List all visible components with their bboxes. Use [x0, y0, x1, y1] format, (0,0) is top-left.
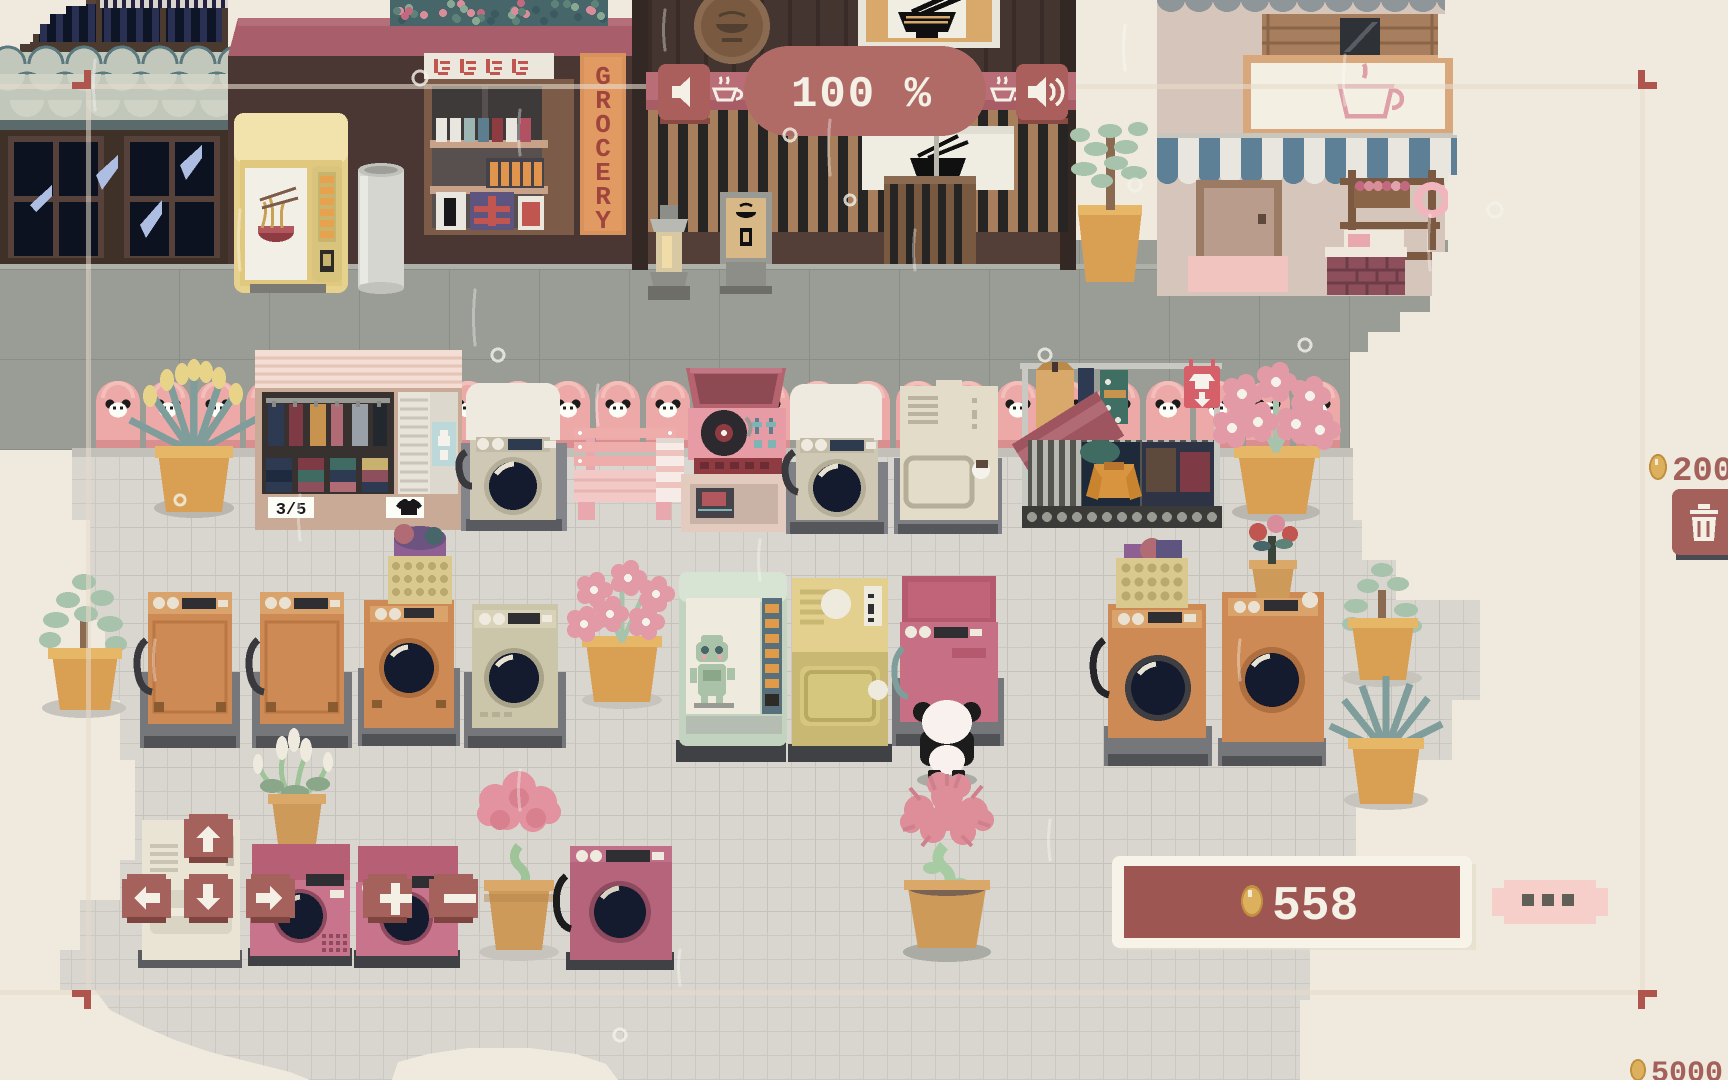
svg-text:Y: Y	[595, 206, 611, 236]
svg-text:100 %: 100 %	[791, 70, 933, 120]
svg-text:2000: 2000	[1672, 453, 1728, 491]
svg-text:3/5: 3/5	[276, 501, 307, 520]
svg-text:5000: 5000	[1651, 1057, 1723, 1080]
svg-text:558: 558	[1272, 880, 1358, 934]
